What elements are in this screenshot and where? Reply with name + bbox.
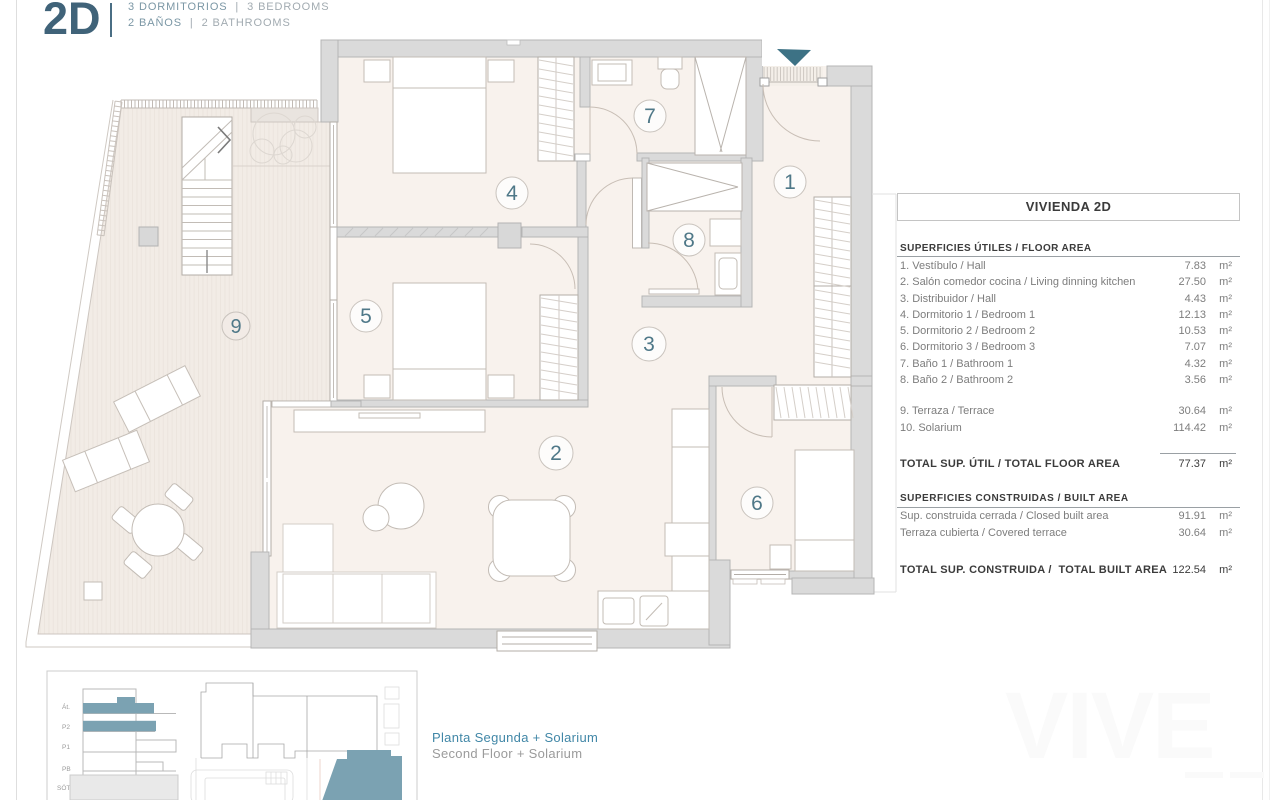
svg-text:Át.: Át. [62, 702, 70, 711]
svg-text:SÓT.: SÓT. [57, 783, 72, 792]
svg-text:P2: P2 [62, 724, 70, 731]
svg-text:PB: PB [62, 766, 71, 773]
svg-text:P1: P1 [62, 744, 70, 751]
